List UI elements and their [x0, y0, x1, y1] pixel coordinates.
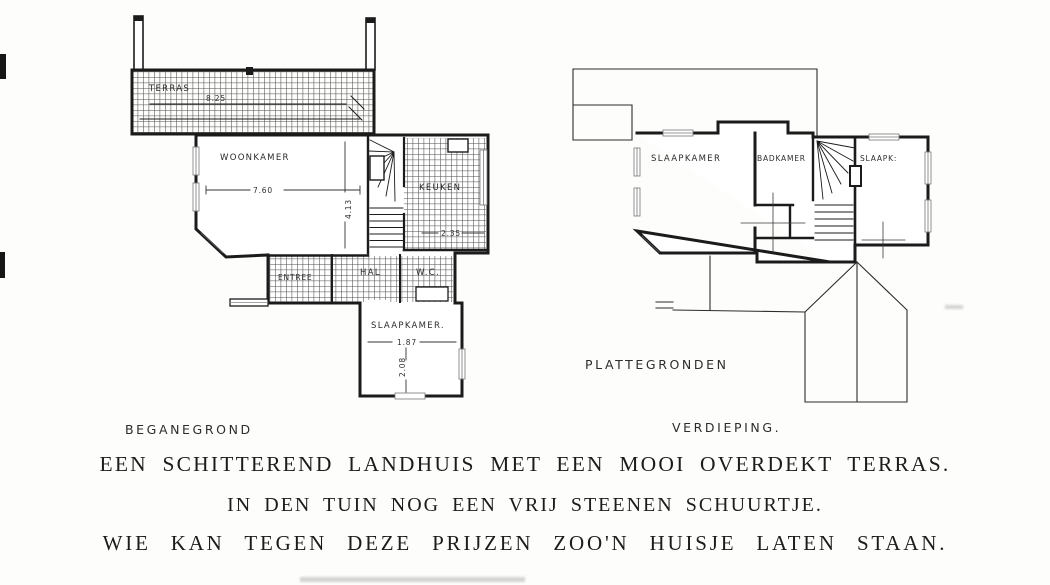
room-label-hal: HAL — [360, 268, 381, 278]
scan-artifact-left-top — [0, 54, 6, 79]
entrance-stub-wall — [230, 299, 268, 306]
dim-keuken-width: 2.35 — [441, 229, 461, 238]
caption-line-1: EEN SCHITTEREND LANDHUIS MET EEN MOOI OV… — [0, 452, 1050, 477]
terras-area — [132, 67, 374, 134]
dim-terras-width: 8.25 — [206, 94, 226, 103]
ground-floor-plan: TERRAS 8.25 KEUKEN 2.35 — [125, 16, 488, 437]
room-label-badkamer: BADKAMER — [757, 154, 806, 163]
dim-woonkamer-depth: 4.13 — [344, 199, 353, 219]
room-label-slaapk: SLAAPK: — [860, 154, 897, 163]
ground-floor-title: BEGANEGROND — [125, 422, 253, 437]
room-label-woonkamer: WOONKAMER — [220, 153, 290, 163]
dim-slaapkamer-depth: 2.08 — [398, 357, 407, 377]
pitched-roof-plan — [656, 256, 907, 402]
room-label-keuken: KEUKEN — [419, 183, 461, 193]
room-label-terras: TERRAS — [148, 84, 190, 94]
floor-plans-drawing: TERRAS 8.25 KEUKEN 2.35 — [0, 0, 1050, 445]
scan-smear-bottom — [300, 577, 525, 582]
scanned-floor-plan-page: TERRAS 8.25 KEUKEN 2.35 — [0, 0, 1050, 585]
room-label-entree: ENTREE — [278, 273, 312, 282]
room-label-slaapkamer: SLAAPKAMER. — [371, 321, 445, 331]
scan-artifact-left-mid — [0, 252, 5, 278]
upper-floor-title: VERDIEPING. — [672, 420, 781, 435]
room-label-upper-slaapkamer: SLAAPKAMER — [651, 154, 721, 164]
terrace-posts — [134, 16, 375, 70]
caption-line-2: IN DEN TUIN NOG EEN VRIJ STEENEN SCHUURT… — [0, 494, 1050, 517]
caption-line-3: WIE KAN TEGEN DEZE PRIJZEN ZOO'N HUISJE … — [0, 531, 1050, 556]
upper-floor-plan: SLAAPKAMER BADKAMER SLAAPK: PLATTEGRONDE… — [573, 69, 931, 435]
upper-floor-outline — [637, 122, 928, 262]
dim-woonkamer-width: 7.60 — [253, 186, 273, 195]
scan-smear-right — [945, 305, 963, 309]
dim-slaapkamer-width: 1.87 — [397, 338, 417, 347]
plans-title: PLATTEGRONDEN — [585, 357, 729, 372]
room-label-wc: W.C. — [416, 268, 440, 278]
